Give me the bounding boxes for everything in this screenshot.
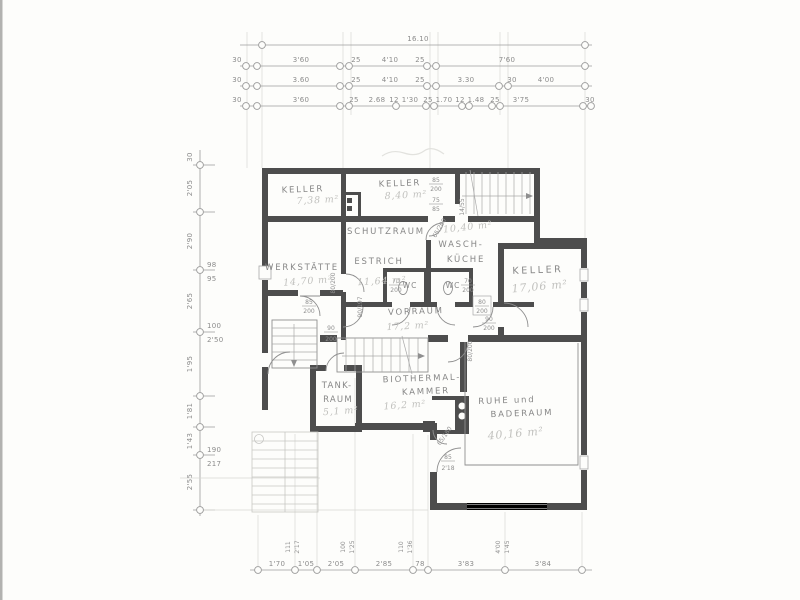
axis-circle: [254, 103, 261, 110]
room-label-tankraum: TANK-: [321, 381, 352, 391]
window: [580, 456, 588, 469]
axis-circle: [243, 103, 250, 110]
floorplan-drawing: 16.10 30 3'60 25 4'10 25 7'60 30 3.60 25…: [0, 0, 800, 600]
stair-top-right: [462, 170, 533, 216]
axis-circle: [352, 567, 359, 574]
axis-circle: [197, 162, 204, 169]
axis-circle: [433, 63, 440, 70]
dim-label: 12: [455, 96, 465, 104]
axis-circle: [197, 209, 204, 216]
axis-circle: [197, 329, 204, 336]
left-dimension-chain: 30 2'05 2'90 2'65 1'95 1'81 1'43 2'55 98…: [186, 150, 224, 516]
dim-label: 30: [507, 76, 517, 84]
dim-label: 95: [207, 275, 217, 283]
dim-label: 1'05: [298, 560, 315, 568]
window-size-label: 2'17: [294, 540, 301, 553]
floor-plan-sheet: 16.10 30 3'60 25 4'10 25 7'60 30 3.60 25…: [0, 0, 800, 600]
top-dimension-grid: 16.10 30 3'60 25 4'10 25 7'60 30 3.60 25…: [232, 32, 595, 238]
dim-label: 98: [207, 261, 217, 269]
axis-circle: [433, 83, 440, 90]
dim-label: 1'81: [186, 403, 194, 420]
room-label-estrich: ESTRICH: [354, 257, 403, 267]
room-label-keller-right: KELLER: [512, 264, 563, 277]
axis-circle: [243, 83, 250, 90]
window: [580, 299, 588, 311]
stair-exterior: [252, 432, 318, 512]
dim-label: 4'10: [382, 76, 399, 84]
room-area-werkstaette: 14,70 m²: [283, 274, 333, 288]
door-size: 85: [305, 299, 313, 306]
lightwell-circle: [255, 435, 264, 444]
stair-lobby: [272, 320, 317, 368]
scan-edge: [0, 0, 3, 600]
dim-label: 2'55: [186, 474, 194, 491]
dim-label: 100: [207, 322, 221, 330]
stove-circle: [459, 413, 465, 419]
window-size-label: 110: [398, 541, 405, 553]
room-area-vorraum: 17,2 m²: [386, 320, 429, 333]
erased-pencil-note: [382, 149, 444, 156]
dim-label: 3'60: [293, 56, 310, 64]
door-size: 90: [327, 325, 335, 332]
axis-circle: [254, 83, 261, 90]
stove-circle: [459, 403, 465, 409]
room-area-ruhe: 40,16 m²: [486, 425, 544, 443]
dim-label: 25: [423, 96, 433, 104]
axis-circle: [197, 452, 204, 459]
dim-label: 78: [415, 560, 425, 568]
dim-label: 217: [207, 460, 221, 468]
dim-label: 1.48: [468, 96, 485, 104]
dim-label: 25: [349, 96, 359, 104]
axis-circle: [579, 567, 586, 574]
dim-label: 3.60: [293, 76, 310, 84]
dim-label: 30: [232, 76, 242, 84]
room-label-werkstaette: WERKSTÄTTE: [265, 262, 339, 273]
axis-circle: [337, 83, 344, 90]
dim-label: 190: [207, 446, 221, 454]
dim-label: 3'75: [513, 96, 530, 104]
door-size: 200: [303, 308, 315, 315]
dim-label: 2'05: [186, 180, 194, 197]
room-area-biothermal: 16,2 m²: [383, 399, 426, 413]
window-size-label: 1'45: [504, 540, 511, 553]
axis-circle: [197, 507, 204, 514]
door-size: 200: [390, 287, 402, 294]
door-size: 200: [483, 325, 495, 332]
axis-circle: [197, 267, 204, 274]
dim-label: 4'00: [538, 76, 555, 84]
axis-circle: [337, 103, 344, 110]
room-label-vorraum: VORRAUM: [388, 306, 444, 318]
room-label-biothermal: BIOTHERMAL-: [383, 373, 462, 386]
room-label-biothermal-2: KAMMER: [402, 386, 450, 398]
dim-label: 25: [351, 76, 361, 84]
room-label-waschkueche-2: KÜCHE: [447, 254, 485, 265]
door-size: 200: [430, 186, 442, 193]
window-size: 75: [432, 197, 440, 204]
window-band: [467, 503, 547, 510]
room-label-ruhe-2: BADERAUM: [490, 408, 553, 420]
dim-label: 30: [232, 96, 242, 104]
room-label-ruhe: RUHE und: [478, 395, 535, 407]
dim-label: 1'95: [186, 356, 194, 373]
axis-circle: [197, 393, 204, 400]
dim-label: 2'50: [207, 336, 224, 344]
axis-circle: [582, 63, 589, 70]
room-label-tankraum-2: RAUM: [323, 395, 353, 405]
door-size: 80: [478, 299, 486, 306]
door-size: 80/200: [467, 340, 474, 361]
door-size: 70: [464, 278, 472, 285]
dim-total: 16.10: [407, 35, 429, 43]
room-area-keller-mid: 8,40 m²: [384, 189, 427, 202]
dim-label: 12: [389, 96, 399, 104]
door-size: 90: [485, 316, 493, 323]
dim-label: 7'60: [499, 56, 516, 64]
dim-label: 3'84: [535, 560, 552, 568]
door-size: 85: [432, 177, 440, 184]
window-size-label: 111: [285, 541, 292, 553]
axis-circle: [254, 63, 261, 70]
dim-label: 1'70: [269, 560, 286, 568]
room-area-keller-left: 7,38 m²: [296, 194, 339, 207]
door-size: 200: [476, 308, 488, 315]
window-size-label: 1'25: [349, 540, 356, 553]
room-label-wc-right: WC: [446, 281, 461, 290]
dim-label: 2'65: [186, 293, 194, 310]
door-size: 2'18: [441, 465, 454, 472]
axis-circle: [259, 42, 266, 49]
room-label-schutzraum: SCHUTZRAUM: [347, 227, 425, 237]
dim-label: 2.68: [369, 96, 386, 104]
extension-lines: [180, 378, 582, 566]
dim-label: 25: [351, 56, 361, 64]
axis-circle: [243, 63, 250, 70]
dim-label: 30: [186, 152, 194, 162]
dim-label: 2'90: [186, 233, 194, 250]
window-size-label: 4'00: [495, 540, 502, 553]
window-size: 14/55: [459, 198, 466, 215]
room-label-waschkueche: WASCH-: [438, 240, 483, 250]
dim-label: 30: [232, 56, 242, 64]
dim-label: 3'83: [458, 560, 475, 568]
dim-label: 25: [415, 56, 425, 64]
dim-label: 1.70: [436, 96, 453, 104]
axis-circle: [425, 567, 432, 574]
dim-label: 1'43: [186, 433, 194, 450]
axis-circle: [255, 567, 262, 574]
axis-circle: [337, 63, 344, 70]
dim-label: 3'60: [293, 96, 310, 104]
door-size: 200: [462, 287, 474, 294]
dim-label: 30: [585, 96, 595, 104]
room-area-tankraum: 5,1 m²: [323, 405, 359, 418]
window: [580, 269, 588, 281]
axis-circle: [197, 424, 204, 431]
room-label-keller-mid: KELLER: [379, 178, 422, 189]
door-size: 90/197: [357, 296, 364, 317]
dim-label: 1'30: [402, 96, 419, 104]
axis-circle: [496, 83, 503, 90]
dim-label: 2'05: [328, 560, 345, 568]
door-size: 200: [325, 336, 337, 343]
axis-circle: [502, 567, 509, 574]
dim-label: 2'85: [376, 560, 393, 568]
dim-label: 3.30: [458, 76, 475, 84]
axis-circle: [314, 567, 321, 574]
window-size-label: 1'36: [407, 540, 414, 553]
axis-circle: [582, 42, 589, 49]
room-label-wc-left: WC: [403, 281, 418, 290]
window-size: 85: [432, 206, 440, 213]
dim-label: 25: [415, 76, 425, 84]
dim-label: 4'10: [382, 56, 399, 64]
room-area-keller-right: 17,06 m²: [511, 278, 568, 296]
dim-label: 25: [490, 96, 500, 104]
axis-circle: [582, 83, 589, 90]
door-size: 85: [444, 454, 452, 461]
window-size-label: 100: [340, 541, 347, 553]
